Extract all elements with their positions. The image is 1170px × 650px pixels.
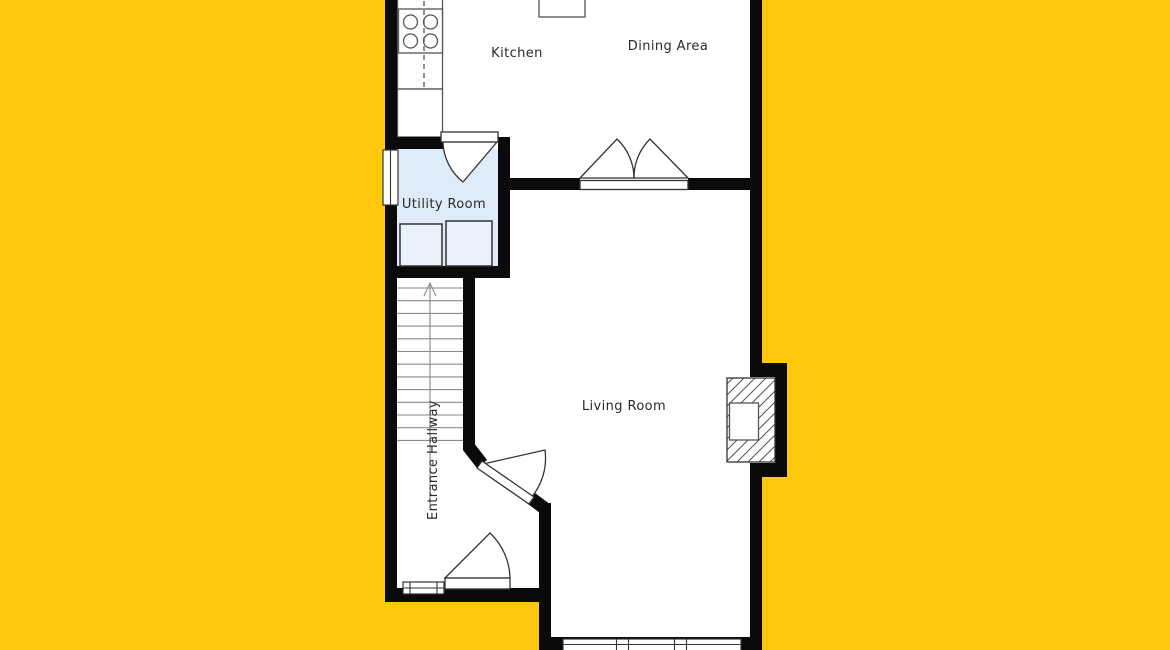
wall-bump-right	[775, 363, 787, 477]
fireplace-icon	[727, 378, 775, 462]
building-footprint	[385, 0, 787, 650]
bay-window	[563, 639, 741, 650]
wall-divider-west	[510, 178, 580, 190]
wall-utility-right	[498, 137, 510, 278]
wall-hall-right	[463, 278, 475, 450]
door-leaf	[445, 578, 510, 589]
kitchen-counter-lower	[398, 89, 443, 137]
washer-icon	[400, 224, 442, 266]
kitchen-label: Kitchen	[491, 46, 543, 61]
fireplace-hearth	[730, 403, 759, 440]
wall-utility-bottom	[385, 266, 510, 278]
door-leaf	[441, 132, 498, 142]
wall-divider-east	[688, 178, 750, 190]
wall-bump-bottom	[750, 463, 787, 477]
entry-window	[403, 582, 444, 594]
utility-room-label: Utility Room	[402, 197, 486, 212]
floor-plan-page: Kitchen Dining Area Utility Room Living …	[0, 0, 1170, 650]
entrance-hallway-label: Entrance Hallway	[426, 400, 441, 520]
utility-window	[383, 150, 398, 205]
dryer-icon	[446, 221, 492, 266]
floor-plan-canvas: Kitchen Dining Area Utility Room Living …	[0, 0, 1170, 650]
door-threshold	[580, 181, 688, 190]
dining-area-label: Dining Area	[628, 39, 708, 54]
living-room-label: Living Room	[582, 399, 666, 414]
wall-right-upper	[750, 0, 762, 363]
wall-left	[385, 0, 397, 602]
dining-table	[539, 0, 585, 17]
wall-utility-top	[385, 137, 443, 149]
utility-appliances	[400, 221, 492, 266]
wall-living-left-lower	[539, 503, 551, 643]
wall-right-lower	[750, 477, 762, 650]
